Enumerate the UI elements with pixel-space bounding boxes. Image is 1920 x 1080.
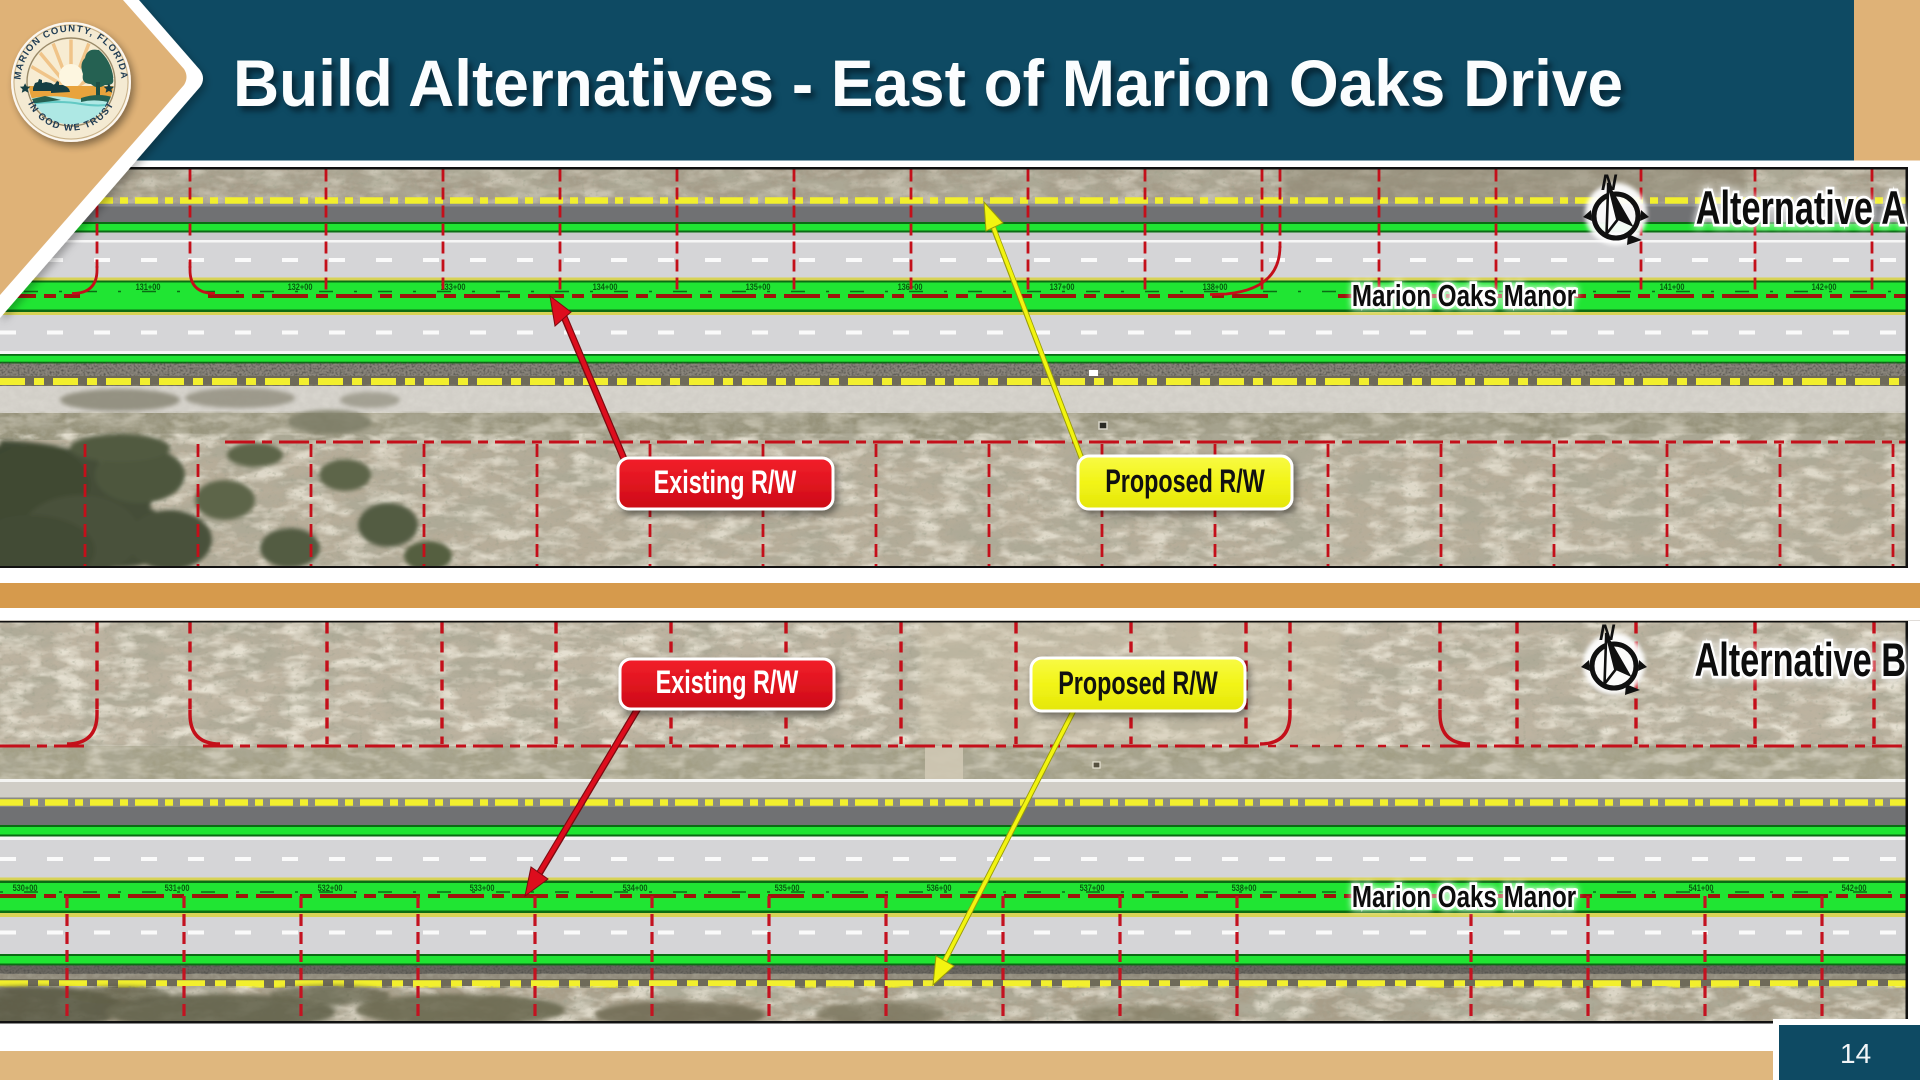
svg-text:541+00: 541+00 [1689, 882, 1714, 893]
svg-text:542+00: 542+00 [1842, 882, 1867, 893]
svg-text:Build Alternatives - East of M: Build Alternatives - East of Marion Oaks… [233, 46, 1623, 120]
svg-text:132+00: 132+00 [288, 281, 313, 292]
svg-text:532+00: 532+00 [318, 882, 343, 893]
svg-text:530+00: 530+00 [13, 882, 38, 893]
svg-text:Marion Oaks Manor: Marion Oaks Manor [1352, 879, 1576, 914]
svg-text:537+00: 537+00 [1080, 882, 1105, 893]
svg-text:134+00: 134+00 [593, 281, 618, 292]
svg-text:137+00: 137+00 [1050, 281, 1075, 292]
svg-text:Existing R/W: Existing R/W [656, 664, 799, 699]
svg-text:535+00: 535+00 [775, 882, 800, 893]
svg-text:138+00: 138+00 [1203, 281, 1228, 292]
svg-text:Alternative A: Alternative A [1696, 182, 1906, 235]
svg-text:536+00: 536+00 [927, 882, 952, 893]
svg-text:N: N [1601, 170, 1618, 195]
svg-text:Alternative B: Alternative B [1694, 634, 1906, 687]
svg-text:135+00: 135+00 [746, 281, 771, 292]
svg-text:142+00: 142+00 [1812, 281, 1837, 292]
svg-text:531+00: 531+00 [165, 882, 190, 893]
svg-text:N: N [1599, 620, 1616, 645]
svg-text:533+00: 533+00 [470, 882, 495, 893]
svg-text:14: 14 [1840, 1038, 1871, 1069]
svg-text:538+00: 538+00 [1232, 882, 1257, 893]
svg-text:Proposed R/W: Proposed R/W [1058, 665, 1218, 700]
svg-text:131+00: 131+00 [136, 281, 161, 292]
svg-text:Proposed R/W: Proposed R/W [1105, 463, 1265, 498]
svg-text:141+00: 141+00 [1660, 281, 1685, 292]
svg-text:Marion Oaks Manor: Marion Oaks Manor [1352, 278, 1576, 313]
svg-text:Existing R/W: Existing R/W [654, 464, 797, 499]
svg-text:534+00: 534+00 [623, 882, 648, 893]
